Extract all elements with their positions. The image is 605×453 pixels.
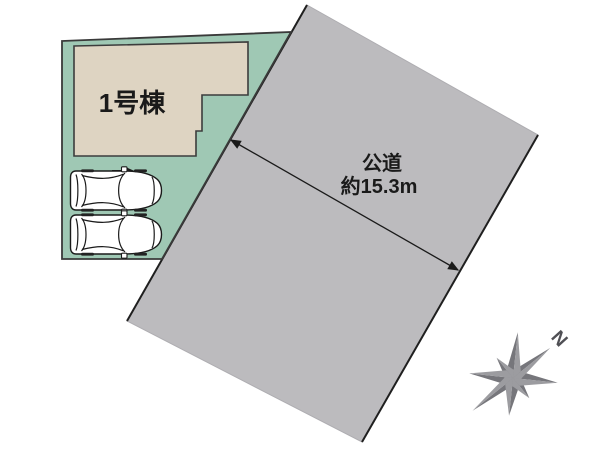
road-width-label: 約15.3m [341,174,418,198]
car-2 [71,211,162,258]
site-plan: 公道 約15.3m 1号棟 [0,0,605,453]
car-1 [71,167,162,214]
building-1-label: 1号棟 [99,88,166,118]
road-type-label: 公道 [362,151,402,175]
north-label: N [546,327,571,351]
site-plan-drawing: 公道 約15.3m 1号棟 [0,0,605,453]
